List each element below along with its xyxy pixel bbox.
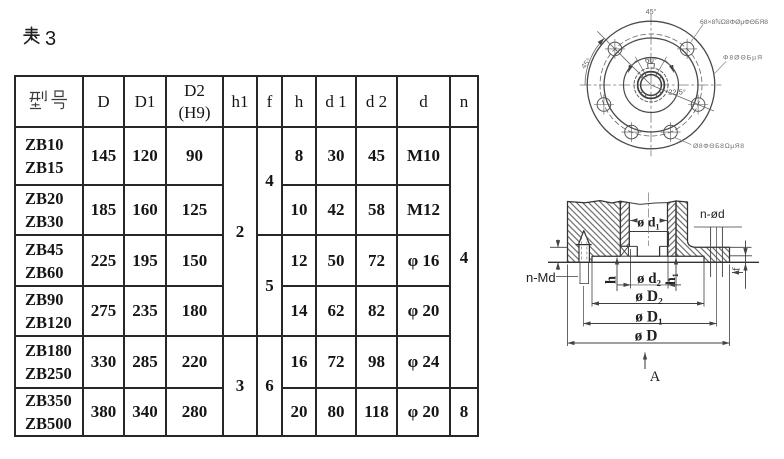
- svg-text:ø d₁: ø d₁: [637, 216, 659, 231]
- svg-text:h: h: [604, 276, 620, 284]
- svg-text:45°: 45°: [579, 56, 593, 70]
- svg-text:Ø8ΦΘБ8ΩµЯ8: Ø8ΦΘБ8ΩµЯ8: [693, 143, 744, 150]
- svg-text:h₁: h₁: [664, 273, 679, 285]
- svg-text:ø D₁: ø D₁: [635, 309, 663, 326]
- svg-text:60°: 60°: [645, 56, 657, 65]
- svg-text:f: f: [731, 267, 743, 271]
- svg-text:45°: 45°: [646, 8, 657, 16]
- svg-text:A: A: [650, 369, 661, 385]
- svg-text:n-ød: n-ød: [700, 207, 725, 221]
- svg-text:Φ8ØΘБµЯ: Φ8ØΘБµЯ: [723, 55, 762, 62]
- svg-text:68×8ℕΩ8ΦØµΦΘБЯ8: 68×8ℕΩ8ΦØµΦΘБЯ8: [700, 18, 768, 26]
- svg-text:ø D: ø D: [635, 328, 658, 345]
- svg-text:ø d₂: ø d₂: [637, 271, 662, 287]
- svg-text:n-Md: n-Md: [526, 270, 556, 285]
- svg-text:22.5°: 22.5°: [668, 88, 686, 97]
- svg-text:ø D₂: ø D₂: [635, 288, 663, 305]
